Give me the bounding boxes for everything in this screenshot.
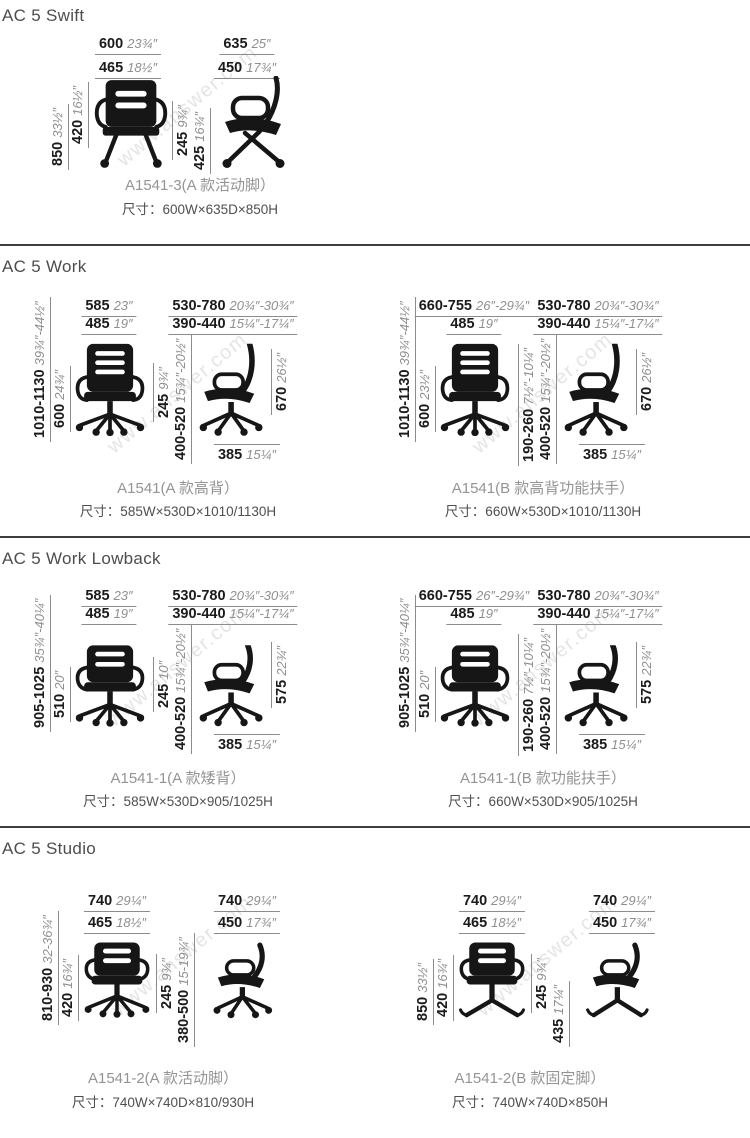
dim-seat-width: 48519″	[81, 316, 136, 335]
dim-armrest-height-range: 190-2607½″-10¼″	[518, 634, 537, 756]
dim-seat-height: 43517¼″	[551, 981, 570, 1047]
dim-seat-depth-range: 390-44015¼″-17¼″	[168, 606, 297, 625]
dim-back-height: 51020″	[52, 667, 71, 722]
dim-back-height: 42016¾″	[435, 955, 454, 1021]
dim-front-width: 60023¾″	[95, 36, 161, 55]
chair-side-view	[210, 939, 280, 1023]
dim-front-width-range: 660-75526″-29¾″	[415, 588, 534, 607]
size-text: 尺寸：740W×740D×850H	[452, 1091, 608, 1111]
size-text: 尺寸：600W×635D×850H	[122, 198, 278, 218]
chair-spec-group-work-b: 660-75526″-29¾″ 48519″ 530-78020¾″-30¾″ …	[390, 292, 730, 522]
dim-back-height: 60024¾″	[52, 366, 71, 432]
chair-side-view	[560, 340, 634, 440]
section-title-swift: AC 5 Swift	[2, 6, 84, 26]
model-caption: A1541-1(A 款矮背）	[110, 767, 245, 788]
size-text: 尺寸：660W×530D×1010/1130H	[445, 500, 641, 520]
model-caption: A1541-3(A 款活动脚）	[125, 174, 275, 195]
dim-total-height-range: 1010-113039¾″-44½″	[32, 297, 51, 442]
dim-back-height: 51020″	[417, 667, 436, 722]
dim-base-depth: 38515¼″	[579, 734, 645, 753]
dim-depth-range: 530-78020¾″-30¾″	[168, 298, 297, 317]
section-title-studio: AC 5 Studio	[2, 839, 96, 859]
chair-side-view	[560, 642, 634, 730]
dim-armrest-height-range: 190-2607½″-10¼″	[518, 344, 537, 466]
section-divider	[0, 826, 750, 828]
chair-spec-group-lowback-a: 58523″ 48519″ 530-78020¾″-30¾″ 390-44015…	[25, 582, 365, 812]
dim-seat-width: 48519″	[446, 606, 501, 625]
dim-depth: 74029¼″	[589, 893, 655, 912]
model-caption: A1541-1(B 款功能扶手）	[460, 767, 626, 788]
dim-depth-range: 530-78020¾″-30¾″	[533, 588, 662, 607]
dim-seat-width: 48519″	[446, 316, 501, 335]
dim-front-width: 74029¼″	[84, 893, 150, 912]
dim-seat-height: 42016½″	[70, 82, 89, 148]
dim-total-height-range: 905-102535¾″-40¼″	[397, 595, 416, 732]
dim-seat-depth-range: 390-44015¼″-17¼″	[533, 316, 662, 335]
size-text: 尺寸：585W×530D×1010/1130H	[80, 500, 276, 520]
chair-spec-group-studio-a: 74029¼″ 46518½″ 74029¼″ 45017¾″ 810-9303…	[40, 885, 370, 1125]
dim-seat-width: 46518½″	[459, 915, 525, 934]
dim-base-depth: 38515¼″	[214, 734, 280, 753]
dim-armrest-height: 2459¾″	[153, 363, 172, 422]
dim-seat-height-range: 400-52015¾″-20½″	[173, 335, 192, 464]
chair-front-view	[457, 939, 527, 1023]
dim-depth: 74029¼″	[214, 893, 280, 912]
dim-back-top-height: 57522¾″	[636, 642, 655, 708]
dim-armrest-height: 2459¾″	[172, 101, 191, 160]
chair-front-view	[82, 939, 152, 1023]
chair-spec-group-work-a: 58523″ 48519″ 530-78020¾″-30¾″ 390-44015…	[25, 292, 365, 522]
section-divider	[0, 536, 750, 538]
dim-back-height: 42016¾″	[60, 955, 79, 1021]
dim-total-height: 85033½″	[50, 104, 69, 170]
chair-front-view	[92, 78, 170, 168]
dim-base-depth: 38515¼″	[214, 444, 280, 463]
section-divider	[0, 244, 750, 246]
dim-back-height: 60023½″	[417, 366, 436, 432]
dim-back-top-height: 57522¾″	[271, 642, 290, 708]
dim-armrest-height: 2459¾″	[531, 954, 550, 1013]
dim-seat-depth-range: 390-44015¼″-17¼″	[168, 316, 297, 335]
chair-front-view	[438, 642, 512, 730]
model-caption: A1541-2(B 款固定脚）	[455, 1067, 606, 1088]
spec-sheet-page: www.answer.com www.answer.com www.answer…	[0, 0, 750, 1138]
dim-total-height-range: 810-93032-36¾″	[40, 911, 59, 1025]
dim-depth-range: 530-78020¾″-30¾″	[168, 588, 297, 607]
chair-spec-group-lowback-b: 660-75526″-29¾″ 48519″ 530-78020¾″-30¾″ …	[390, 582, 730, 812]
section-title-work: AC 5 Work	[2, 257, 87, 277]
dim-seat-height-range: 400-52015¾″-20½″	[173, 625, 192, 754]
model-caption: A1541-2(A 款活动脚）	[88, 1067, 238, 1088]
chair-side-view	[195, 642, 269, 730]
chair-front-view	[438, 340, 512, 440]
chair-front-view	[73, 340, 147, 440]
dim-seat-depth: 45017¾″	[589, 915, 655, 934]
section-title-work-lowback: AC 5 Work Lowback	[2, 549, 161, 569]
size-text: 尺寸：740W×740D×810/930H	[72, 1091, 254, 1111]
dim-back-top-height: 67026½″	[636, 349, 655, 415]
chair-front-view	[73, 642, 147, 730]
dim-total-height-range: 1010-113039¾″-44½″	[397, 297, 416, 442]
dim-seat-height-range: 400-52015¾″-20½″	[538, 335, 557, 464]
dim-seat-height-range: 400-52015¾″-20½″	[538, 625, 557, 754]
size-text: 尺寸：660W×530D×905/1025H	[448, 790, 638, 810]
dim-total-height-range: 905-102535¾″-40¼″	[32, 595, 51, 732]
chair-spec-group-swift: 60023¾″ 46518½″ 63525″ 45017¾″ 85033½″ 4…	[40, 28, 370, 243]
chair-spec-group-studio-b: 74029¼″ 46518½″ 74029¼″ 45017¾″ 85033½″ …	[415, 885, 745, 1125]
dim-seat-width: 46518½″	[84, 915, 150, 934]
dim-back-top-height: 67026½″	[271, 349, 290, 415]
model-caption: A1541(A 款高背）	[117, 477, 239, 498]
dim-depth-range: 530-78020¾″-30¾″	[533, 298, 662, 317]
chair-side-view	[195, 340, 269, 440]
dim-seat-width: 46518½″	[95, 60, 161, 79]
size-text: 尺寸：585W×530D×905/1025H	[83, 790, 273, 810]
dim-armrest-height: 24510″	[153, 657, 172, 712]
chair-side-view	[214, 76, 294, 168]
dim-seat-height-range: 380-50015-19¾″	[176, 933, 195, 1047]
dim-seat-depth: 45017¾″	[214, 915, 280, 934]
dim-base-depth: 38515¼″	[579, 444, 645, 463]
dim-front-width: 58523″	[81, 588, 136, 607]
dim-front-width-range: 660-75526″-29¾″	[415, 298, 534, 317]
dim-seat-width: 48519″	[81, 606, 136, 625]
dim-front-width: 58523″	[81, 298, 136, 317]
dim-armrest-height: 2459¾″	[156, 954, 175, 1013]
model-caption: A1541(B 款高背功能扶手）	[452, 477, 635, 498]
dim-side-height: 42516¾″	[192, 108, 211, 174]
dim-depth: 63525″	[219, 36, 274, 55]
dim-front-width: 74029¼″	[459, 893, 525, 912]
chair-side-view	[585, 939, 655, 1023]
dim-total-height: 85033½″	[415, 959, 434, 1025]
dim-seat-depth-range: 390-44015¼″-17¼″	[533, 606, 662, 625]
